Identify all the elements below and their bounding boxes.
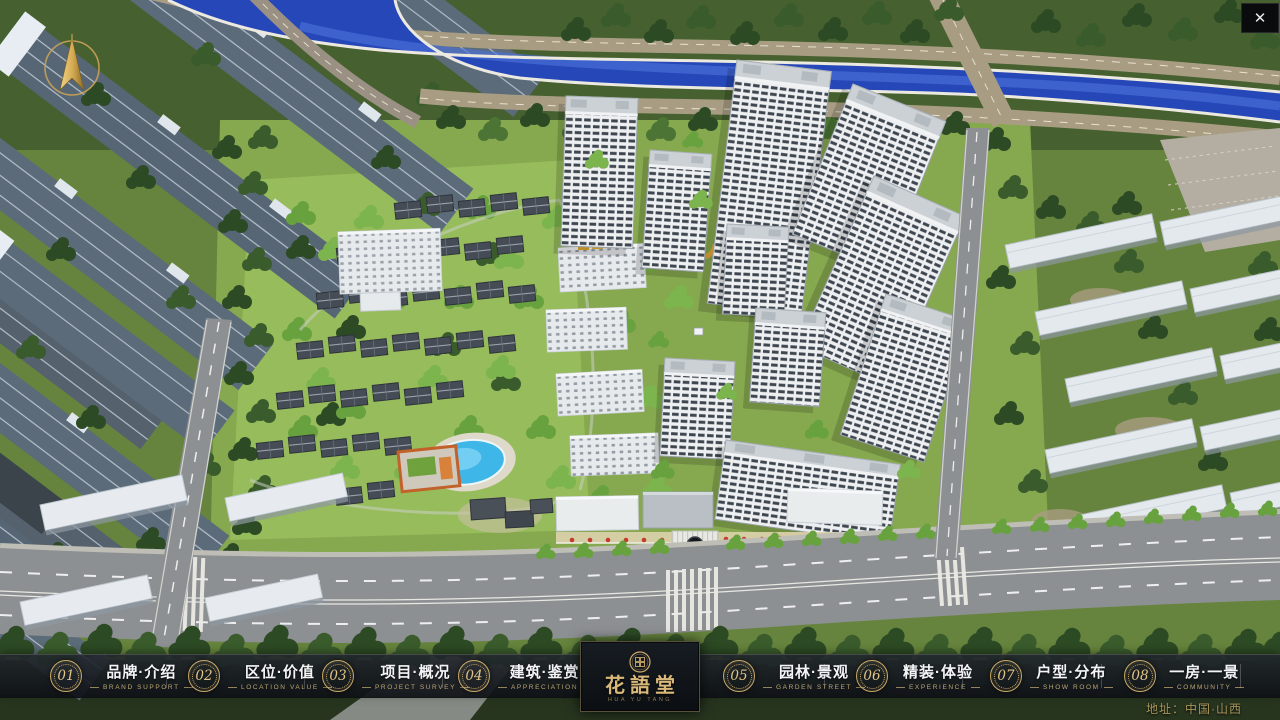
nav-item-labels: 园林·景观 GARDEN STREET <box>763 661 865 691</box>
rule-line <box>896 687 905 688</box>
rule-line <box>1164 687 1173 688</box>
nav-item-label-en: COMMUNITY <box>1164 684 1244 691</box>
masterplan-rendering <box>0 0 1280 720</box>
close-icon: ✕ <box>1254 9 1267 27</box>
project-logo[interactable]: 花語堂 HUA YU TANG <box>580 641 700 712</box>
nav-item-label-en: PROJECT SURVEY <box>362 684 469 691</box>
nav-item-number: 01 <box>57 668 74 684</box>
nav-item-garden[interactable]: 05 园林·景观 GARDEN STREET <box>723 655 865 697</box>
nav-item-number-badge: 06 <box>856 660 888 692</box>
project-address: 地址：中国·山西 <box>1146 700 1242 717</box>
nav-item-architecture[interactable]: 04 建筑·鉴赏 APPRECIATION <box>458 655 591 697</box>
nav-item-number: 04 <box>465 668 482 684</box>
rule-line <box>228 687 237 688</box>
nav-item-label-en-text: GARDEN STREET <box>776 684 852 691</box>
nav-item-label-en: APPRECIATION <box>498 684 591 691</box>
nav-item-label-en-text: LOCATION VALUE <box>241 684 319 691</box>
project-logo-tagline: HUA YU TANG <box>608 697 672 703</box>
nav-item-community[interactable]: 08 一房·一景 COMMUNITY <box>1124 655 1244 697</box>
nav-item-labels: 区位·价值 LOCATION VALUE <box>228 661 332 691</box>
nav-item-number: 05 <box>730 668 747 684</box>
nav-item-label-en: LOCATION VALUE <box>228 684 332 691</box>
nav-item-number-badge: 02 <box>188 660 220 692</box>
nav-item-label-en: BRAND SUPPORT <box>90 684 193 691</box>
seal-icon <box>629 651 651 673</box>
nav-item-label-zh: 项目·概况 <box>381 661 451 682</box>
nav-item-label-zh: 品牌·介绍 <box>106 661 176 682</box>
nav-item-label-en: SHOW ROOM <box>1030 684 1113 691</box>
nav-item-number: 08 <box>1131 668 1148 684</box>
nav-item-number: 02 <box>195 668 212 684</box>
nav-item-label-zh: 区位·价值 <box>245 661 315 682</box>
rule-line <box>971 687 980 688</box>
nav-item-label-en-text: PROJECT SURVEY <box>375 684 456 691</box>
nav-item-number: 06 <box>863 668 880 684</box>
rule-line <box>362 687 371 688</box>
nav-item-number-badge: 07 <box>990 660 1022 692</box>
nav-item-labels: 户型·分布 SHOW ROOM <box>1030 661 1113 691</box>
nav-item-label-en-text: BRAND SUPPORT <box>103 684 180 691</box>
nav-item-label-en-text: COMMUNITY <box>1177 684 1231 691</box>
rule-line <box>90 687 99 688</box>
nav-item-label-zh: 精装·体验 <box>903 661 973 682</box>
nav-item-label-zh: 一房·一景 <box>1169 661 1239 682</box>
nav-item-project[interactable]: 03 项目·概况 PROJECT SURVEY <box>322 655 469 697</box>
rule-line <box>1235 687 1244 688</box>
nav-item-labels: 项目·概况 PROJECT SURVEY <box>362 661 469 691</box>
nav-item-number-badge: 05 <box>723 660 755 692</box>
nav-item-label-en-text: SHOW ROOM <box>1043 684 1100 691</box>
nav-item-label-en: GARDEN STREET <box>763 684 865 691</box>
close-button[interactable]: ✕ <box>1241 3 1279 33</box>
masterplan-viewport[interactable] <box>0 0 1280 720</box>
nav-item-label-en: EXPERIENCE <box>896 684 980 691</box>
nav-item-number-badge: 01 <box>50 660 82 692</box>
nav-item-label-zh: 户型·分布 <box>1036 661 1106 682</box>
nav-item-labels: 品牌·介绍 BRAND SUPPORT <box>90 661 193 691</box>
nav-item-number-badge: 03 <box>322 660 354 692</box>
rule-line <box>1030 687 1039 688</box>
nav-item-label-zh: 园林·景观 <box>779 661 849 682</box>
nav-item-label-zh: 建筑·鉴赏 <box>510 661 580 682</box>
nav-item-number-badge: 04 <box>458 660 490 692</box>
nav-item-brand[interactable]: 01 品牌·介绍 BRAND SUPPORT <box>50 655 193 697</box>
nav-item-labels: 建筑·鉴赏 APPRECIATION <box>498 661 591 691</box>
nav-item-location[interactable]: 02 区位·价值 LOCATION VALUE <box>188 655 332 697</box>
nav-item-labels: 精装·体验 EXPERIENCE <box>896 661 980 691</box>
nav-item-label-en-text: EXPERIENCE <box>909 684 967 691</box>
nav-item-number: 03 <box>329 668 346 684</box>
nav-item-experience[interactable]: 06 精装·体验 EXPERIENCE <box>856 655 980 697</box>
rule-line <box>1104 687 1113 688</box>
nav-item-label-en-text: APPRECIATION <box>511 684 578 691</box>
rule-line <box>498 687 507 688</box>
project-logo-name: 花語堂 <box>605 675 680 695</box>
rule-line <box>763 687 772 688</box>
nav-item-labels: 一房·一景 COMMUNITY <box>1164 661 1244 691</box>
nav-item-number-badge: 08 <box>1124 660 1156 692</box>
nav-item-number: 07 <box>997 668 1014 684</box>
nav-item-floorplan[interactable]: 07 户型·分布 SHOW ROOM <box>990 655 1113 697</box>
